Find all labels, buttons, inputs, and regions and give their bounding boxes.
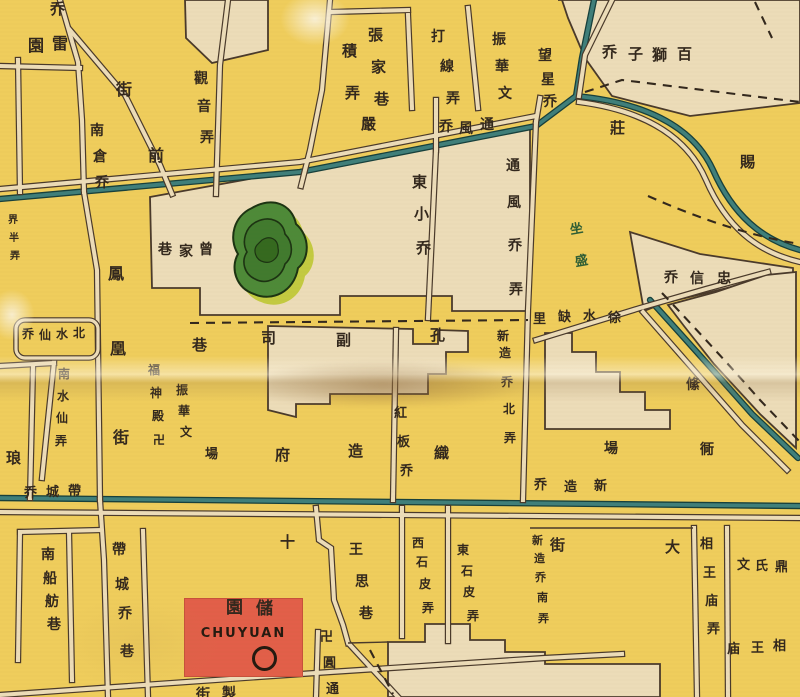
temple-circle-icon — [252, 646, 277, 671]
chuyuan-latin-label: CHUYUAN — [184, 626, 303, 641]
historical-map-canvas: CHUYUAN 乔園雷積弄街南倉乔前觀音弄張家巷打線弄振華文嚴乔風通望星乔乔子獅… — [0, 0, 800, 697]
map-artwork — [0, 0, 800, 697]
chuyuan-landmark-box: CHUYUAN — [184, 598, 303, 677]
